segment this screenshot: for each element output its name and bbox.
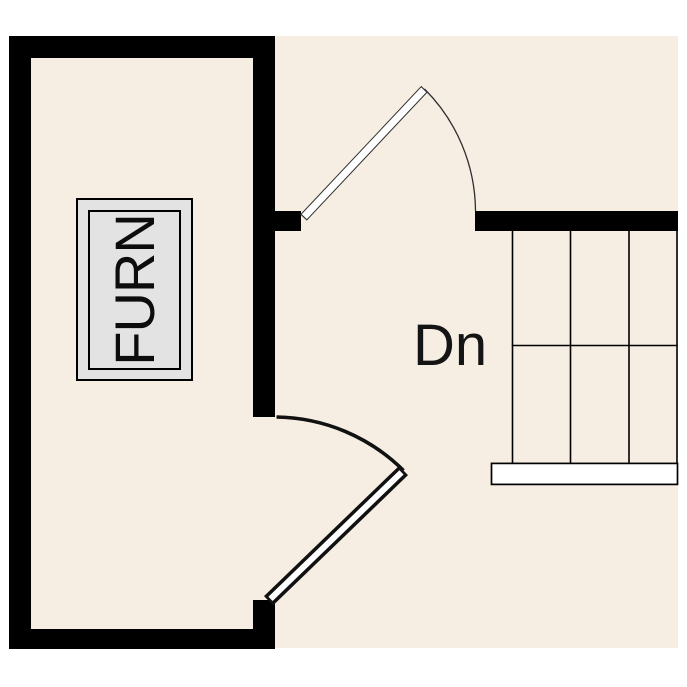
plan-line-work bbox=[0, 0, 687, 687]
floor-plan-canvas: FURN Dn bbox=[0, 0, 687, 687]
door-bottom[interactable] bbox=[269, 417, 404, 601]
stair-landing[interactable] bbox=[492, 463, 678, 484]
door-top[interactable] bbox=[304, 89, 476, 218]
staircase[interactable] bbox=[492, 231, 678, 484]
door-swing-arc-top bbox=[425, 89, 476, 211]
door-swing-arc-bottom bbox=[277, 417, 404, 471]
door-leaf-top bbox=[304, 90, 423, 217]
door-leaf-bottom bbox=[271, 472, 402, 599]
